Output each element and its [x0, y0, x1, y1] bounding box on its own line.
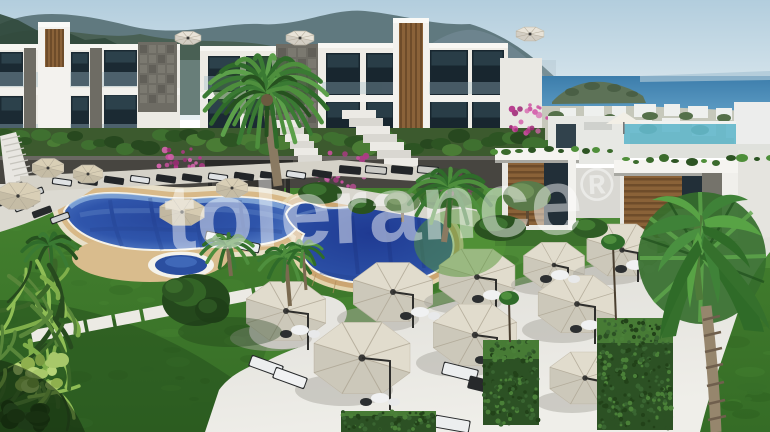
svg-text:tolerance: tolerance [162, 148, 584, 270]
svg-text:®: ® [579, 157, 616, 211]
